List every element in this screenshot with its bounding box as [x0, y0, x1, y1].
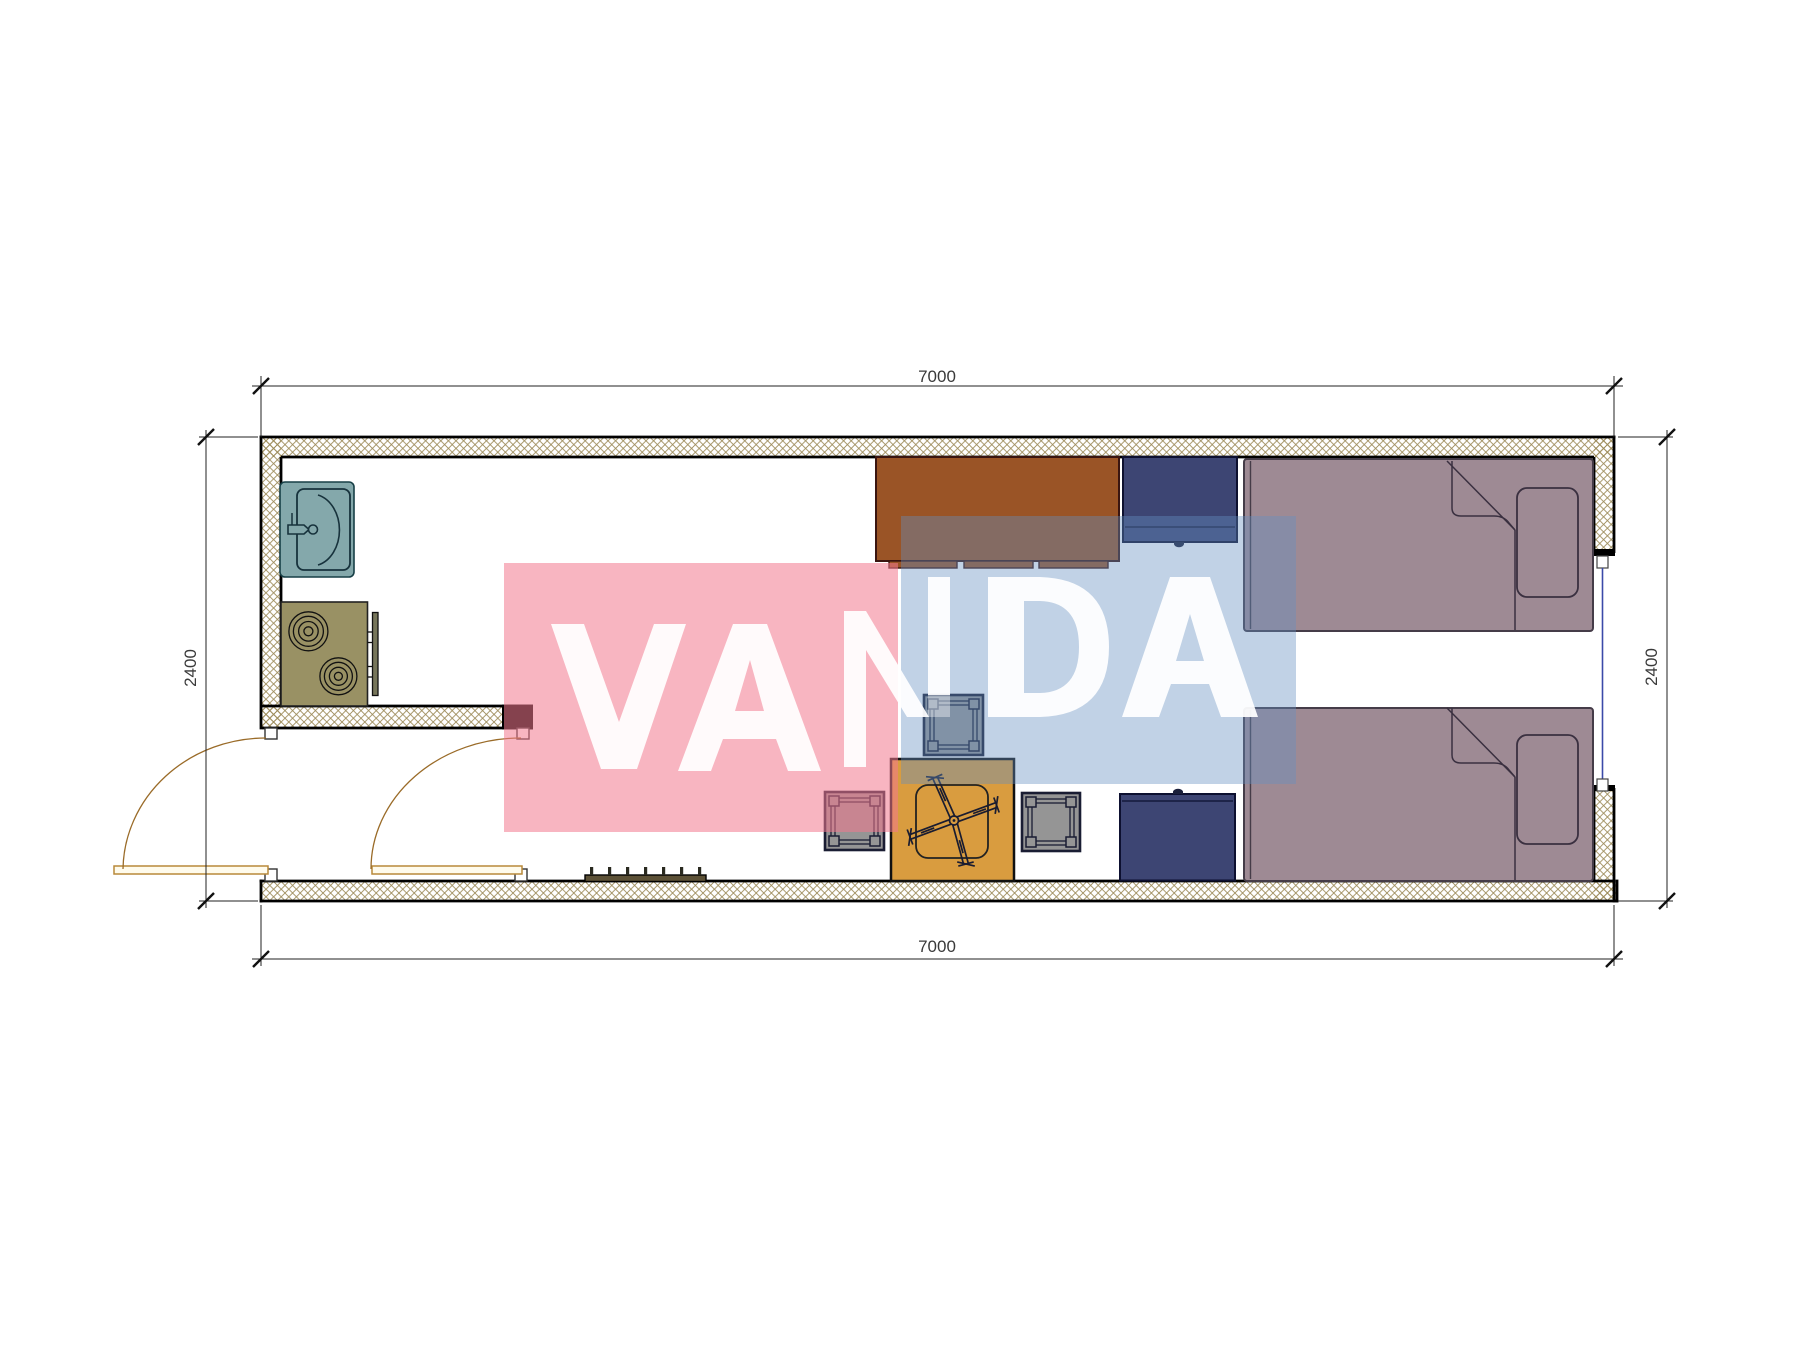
svg-text:2400: 2400 [181, 649, 200, 687]
svg-text:7000: 7000 [918, 367, 956, 386]
svg-text:7000: 7000 [918, 937, 956, 956]
svg-text:2400: 2400 [1642, 648, 1661, 686]
